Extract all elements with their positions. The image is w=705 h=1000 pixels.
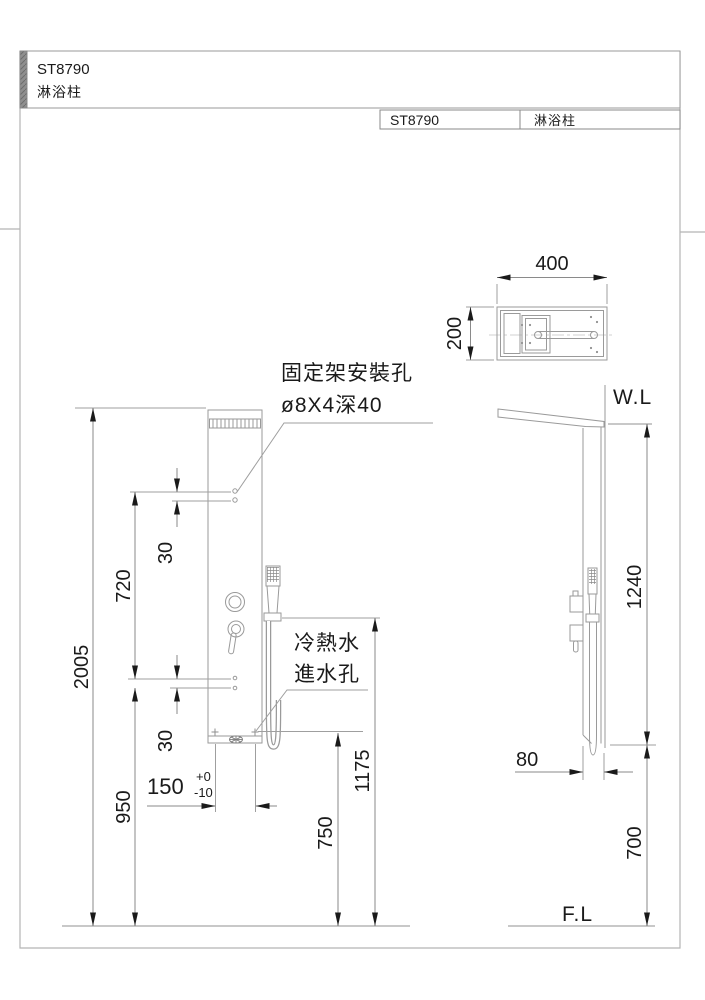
mixer-side xyxy=(570,591,583,652)
hand-shower-front xyxy=(264,566,281,747)
shower-arm-side xyxy=(498,409,604,427)
header-model: ST8790 xyxy=(37,61,90,78)
dim-total-height: 2005 xyxy=(71,408,96,926)
sheet-frame xyxy=(0,51,705,948)
mount-hole-note-line2: ø8X4深40 xyxy=(281,394,383,417)
dim-label-80: 80 xyxy=(516,749,538,771)
dim-hole-span: 720 xyxy=(113,492,138,679)
title-model-cell: ST8790 xyxy=(390,112,439,128)
dim-label-400: 400 xyxy=(535,253,568,275)
dim-label-1240: 1240 xyxy=(624,565,646,610)
title-product-cell: 淋浴柱 xyxy=(534,113,576,128)
dim-inlet-height: 750 xyxy=(315,733,341,926)
dim-lower-section: 950 xyxy=(113,688,138,926)
front-view: 固定架安裝孔 ø8X4深40 冷熱水 進水孔 2005 xyxy=(62,362,433,926)
dim-label-150: 150 xyxy=(147,774,184,799)
inlet-hole-left xyxy=(212,729,219,736)
dim-label-950: 950 xyxy=(113,790,135,823)
mount-hole-upper-2 xyxy=(233,498,237,502)
panel-body xyxy=(208,410,262,736)
drawing-sheet: ST8790 淋浴柱 ST8790 淋浴柱 xyxy=(0,0,705,1000)
dim-label-1175: 1175 xyxy=(352,749,374,792)
dim-label-30-top: 30 xyxy=(155,542,177,564)
hose-end-side xyxy=(590,735,597,755)
dim-top-depth: 200 xyxy=(444,307,494,360)
dim-inlet-spacing: 150 +0 -10 xyxy=(147,769,277,809)
floor-level-label: F.L xyxy=(562,903,593,926)
dim-label-30-bottom: 30 xyxy=(155,730,177,752)
panel-top-grill xyxy=(210,419,261,428)
technical-drawing: ST8790 淋浴柱 ST8790 淋浴柱 xyxy=(0,0,705,1000)
front-extension-lines xyxy=(75,408,380,812)
dim-label-720: 720 xyxy=(113,569,135,602)
dim-label-200: 200 xyxy=(444,317,466,350)
hand-shower-side xyxy=(586,568,599,755)
mount-hole-lower-1 xyxy=(233,676,237,680)
header-product: 淋浴柱 xyxy=(37,84,82,100)
dim-upper-height: 1240 xyxy=(624,424,650,745)
dim-label-150-tol-plus: +0 xyxy=(196,769,211,784)
dim-label-700: 700 xyxy=(624,826,646,859)
header-accent-bar xyxy=(20,51,27,108)
header: ST8790 淋浴柱 xyxy=(20,51,680,108)
dim-label-150-tol-minus: -10 xyxy=(194,785,213,800)
dim-label-2005: 2005 xyxy=(71,645,93,690)
plan-screw-dots xyxy=(521,316,598,353)
dim-top-width: 400 xyxy=(497,253,607,304)
mount-hole-lower-2 xyxy=(233,686,237,690)
title-block: ST8790 淋浴柱 xyxy=(380,110,680,129)
mount-hole-upper-1 xyxy=(233,489,237,493)
inlet-note-line2: 進水孔 xyxy=(294,663,360,686)
base-drain-symbol xyxy=(230,736,243,743)
water-level-label: W.L xyxy=(613,386,652,409)
inlet-note-line1: 冷熱水 xyxy=(294,632,360,655)
mixer-valve xyxy=(226,593,245,655)
mount-hole-note-line1: 固定架安裝孔 xyxy=(281,362,413,385)
dim-hole-gap-bottom: 30 xyxy=(155,655,180,752)
dim-panel-depth: 80 xyxy=(515,746,633,780)
dim-hole-gap-top: 30 xyxy=(155,468,180,564)
inlet-leader xyxy=(256,690,368,731)
side-view: W.L F.L 1240 700 80 xyxy=(498,385,656,926)
top-view: 400 200 xyxy=(444,253,613,360)
dim-label-750: 750 xyxy=(315,816,337,849)
mount-hole-leader xyxy=(237,423,433,492)
